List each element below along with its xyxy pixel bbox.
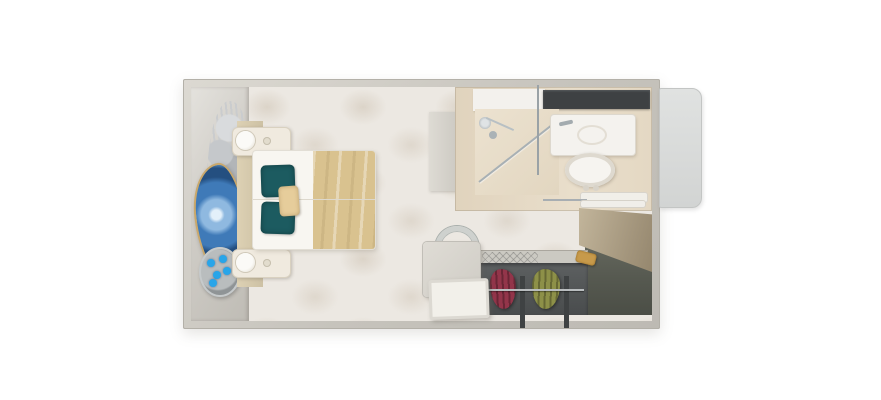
stateroom-floorplan bbox=[183, 79, 660, 329]
blue-flower bbox=[207, 259, 215, 267]
blue-flower bbox=[213, 271, 221, 279]
blue-flower bbox=[219, 255, 227, 263]
bathroom bbox=[455, 87, 652, 211]
side-table bbox=[428, 278, 489, 320]
toilet-hinge bbox=[593, 185, 599, 191]
toilet-bowl bbox=[565, 153, 615, 187]
table-lamp-icon bbox=[236, 131, 255, 150]
blue-flower bbox=[209, 279, 217, 287]
shower-valve-icon bbox=[489, 131, 497, 139]
mirror-wall bbox=[543, 90, 650, 109]
nightstand-bottom bbox=[232, 249, 291, 278]
bathroom-wall bbox=[473, 89, 545, 111]
closet-rail bbox=[480, 289, 584, 291]
cabin-entry-panel bbox=[659, 88, 702, 208]
blue-flower bbox=[223, 267, 231, 275]
accent-pillow bbox=[278, 185, 300, 216]
closet-interior bbox=[476, 263, 588, 315]
closet-divider bbox=[564, 276, 569, 328]
toilet bbox=[565, 151, 621, 191]
faucet-icon bbox=[559, 120, 574, 127]
lamp-knob bbox=[263, 137, 271, 145]
floorplan-canvas bbox=[0, 0, 881, 400]
lamp-knob bbox=[263, 259, 271, 267]
toilet-hinge bbox=[583, 185, 589, 191]
entry-threshold bbox=[581, 201, 645, 207]
closet-divider bbox=[520, 276, 525, 328]
towel-bar-icon bbox=[543, 199, 587, 201]
bed-runner-blanket bbox=[313, 151, 375, 249]
shower bbox=[475, 109, 559, 195]
shower-glass-panel bbox=[537, 85, 539, 175]
closet bbox=[476, 250, 588, 315]
table-lamp-icon bbox=[236, 253, 255, 272]
bed-seam bbox=[253, 199, 375, 200]
sink-vanity bbox=[551, 115, 635, 155]
bed bbox=[253, 151, 375, 249]
sink-basin bbox=[577, 125, 607, 145]
